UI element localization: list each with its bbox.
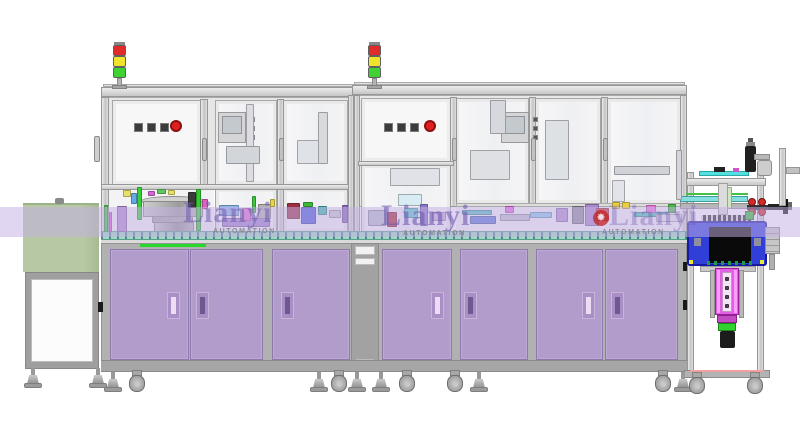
watermark-subtitle: AUTOMATION — [403, 230, 466, 237]
machine-rendering: LianyiAUTOMATIONLianyiAUTOMATION✸LianyiA… — [0, 0, 800, 438]
watermark-subtitle: AUTOMATION — [213, 228, 276, 235]
watermark-brand: Lianyi — [609, 201, 698, 231]
watermark-layer: LianyiAUTOMATIONLianyiAUTOMATION✸LianyiA… — [0, 0, 800, 438]
watermark-subtitle: AUTOMATION — [602, 229, 665, 236]
watermark-logo: ✸ — [593, 210, 609, 226]
watermark-brand: Lianyi — [381, 201, 470, 231]
watermark-brand: Lianyi — [183, 198, 272, 228]
